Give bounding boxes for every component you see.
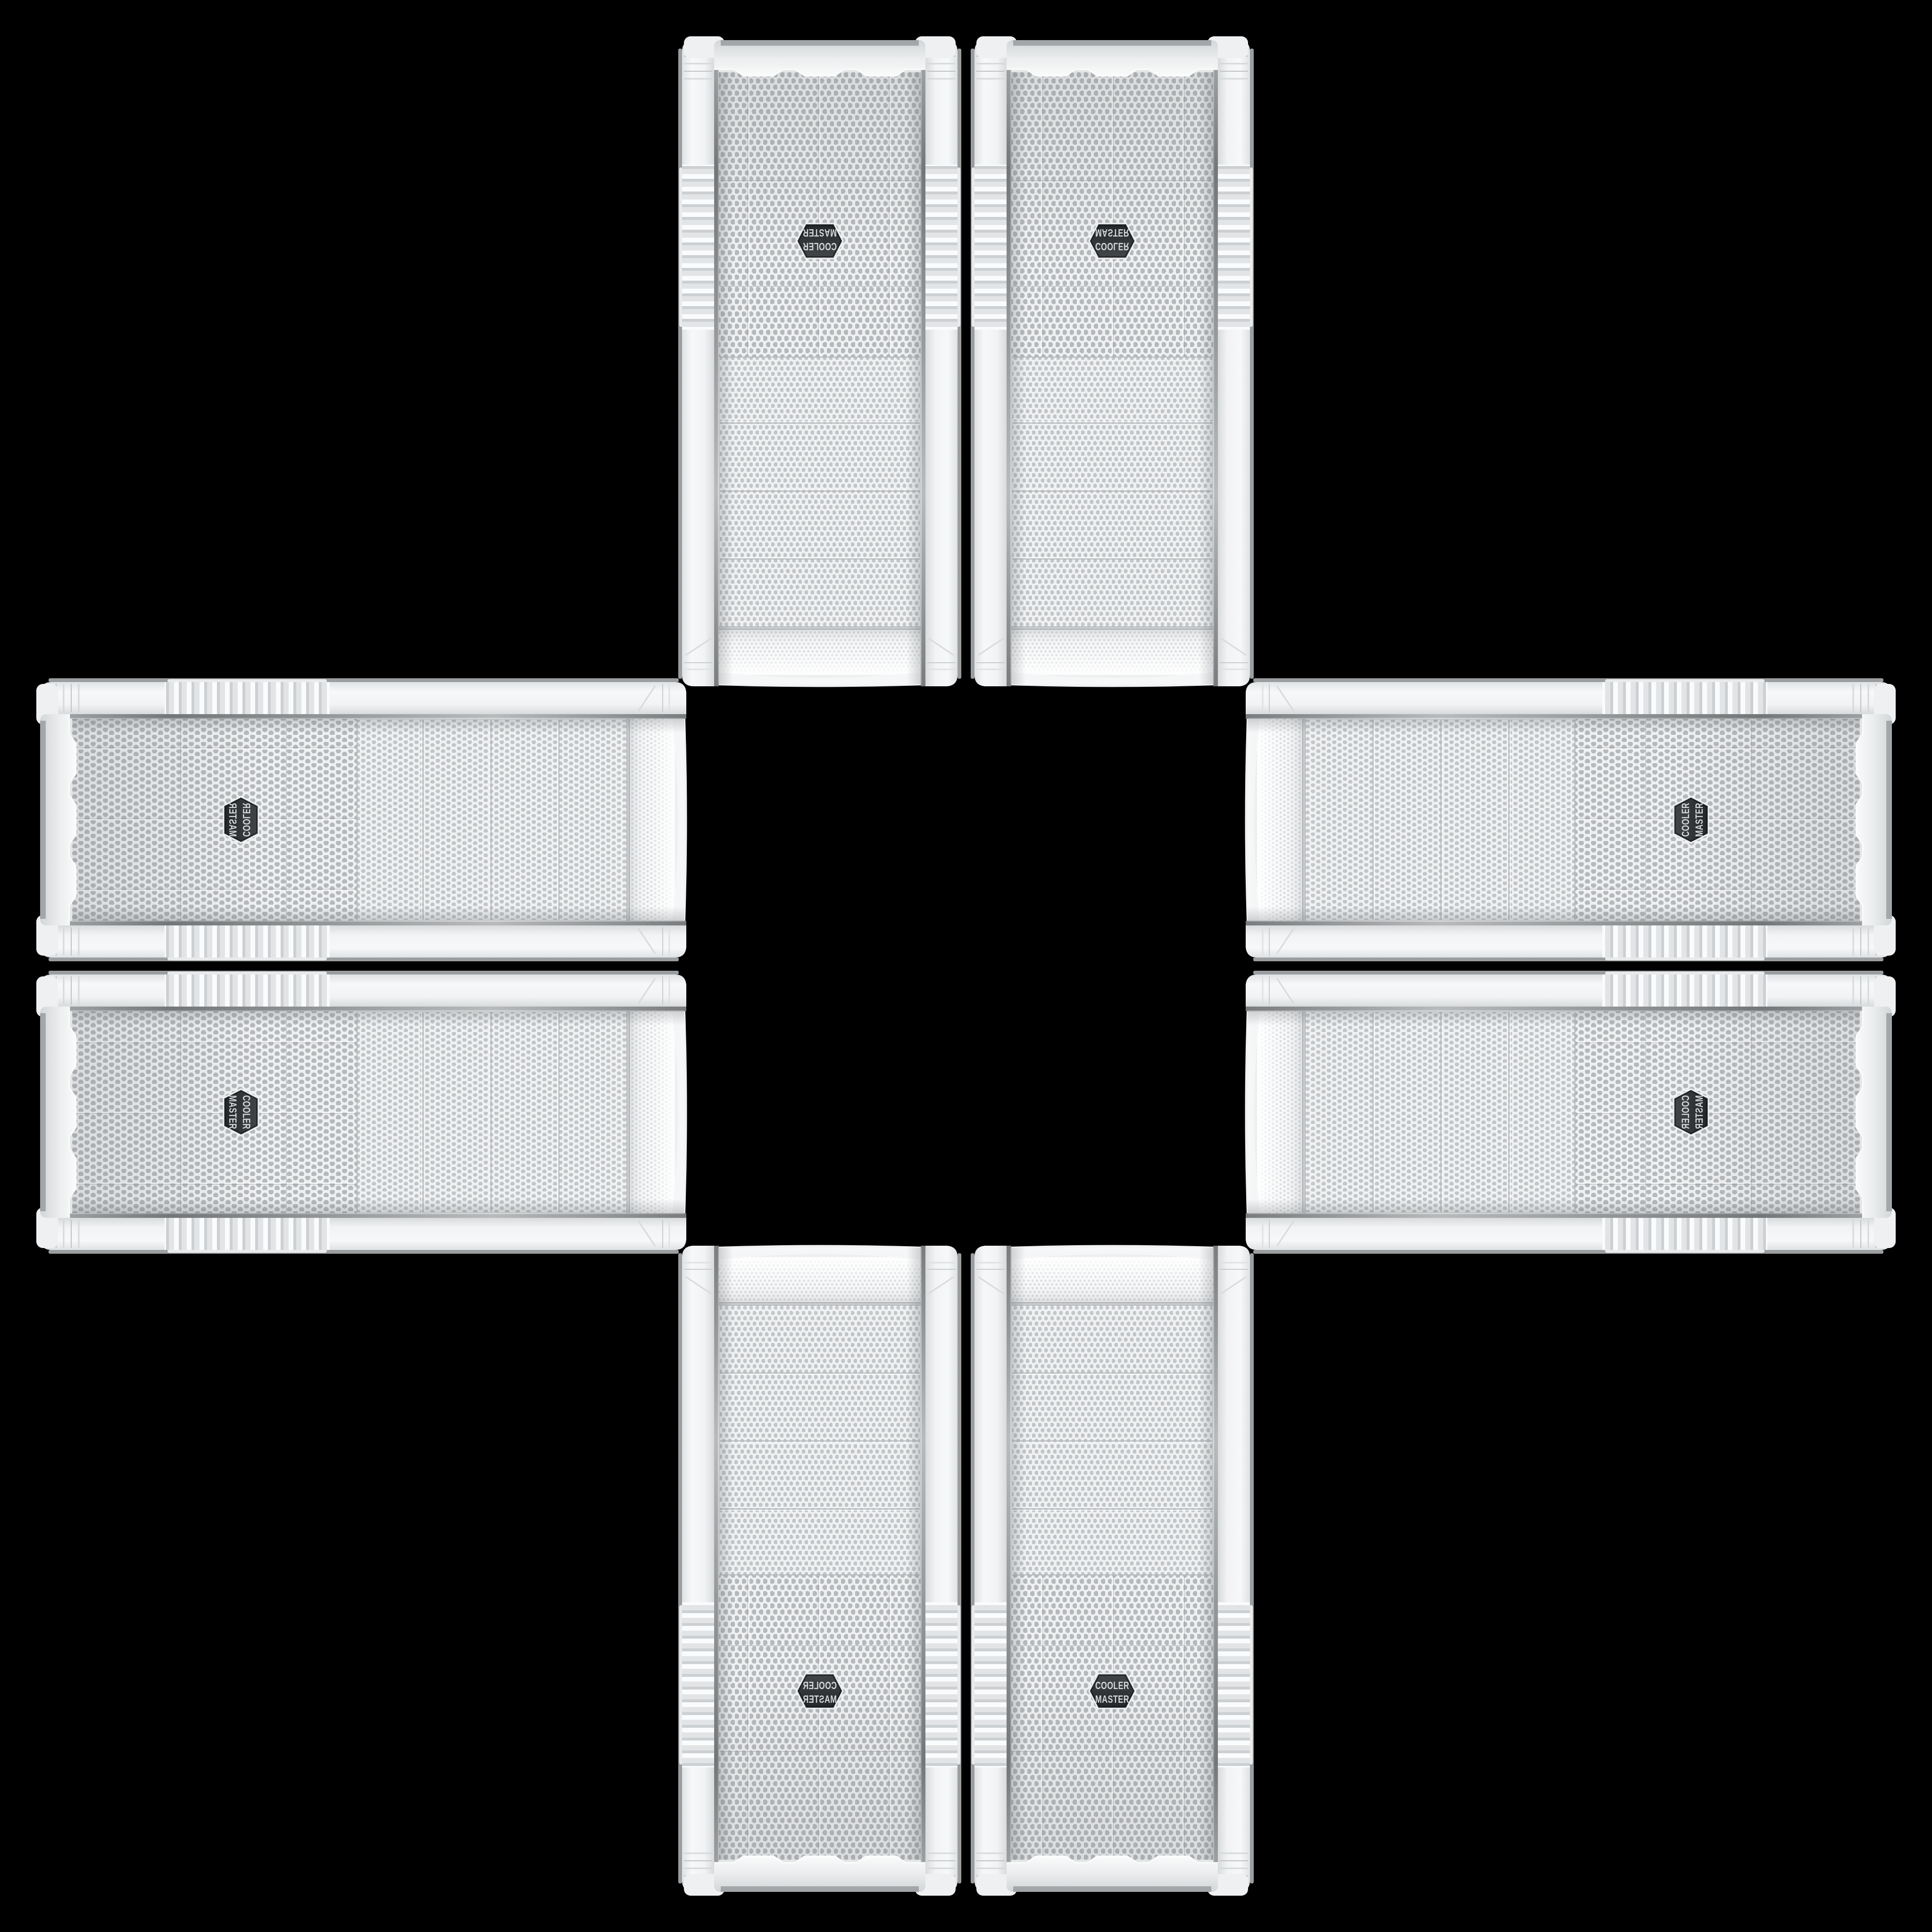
case-top-right (971, 36, 1254, 687)
case-cross-collage: COOLER MASTER (0, 0, 1932, 1932)
black-background-stage: COOLER MASTER (0, 0, 1932, 1932)
case-top-left (678, 36, 961, 687)
case-left-top (36, 678, 687, 961)
case-bottom-left (678, 1245, 961, 1896)
case-bottom-right (971, 1245, 1254, 1896)
case-right-top (1245, 678, 1896, 961)
case-left-bottom (36, 971, 687, 1254)
case-right-bottom (1245, 971, 1896, 1254)
